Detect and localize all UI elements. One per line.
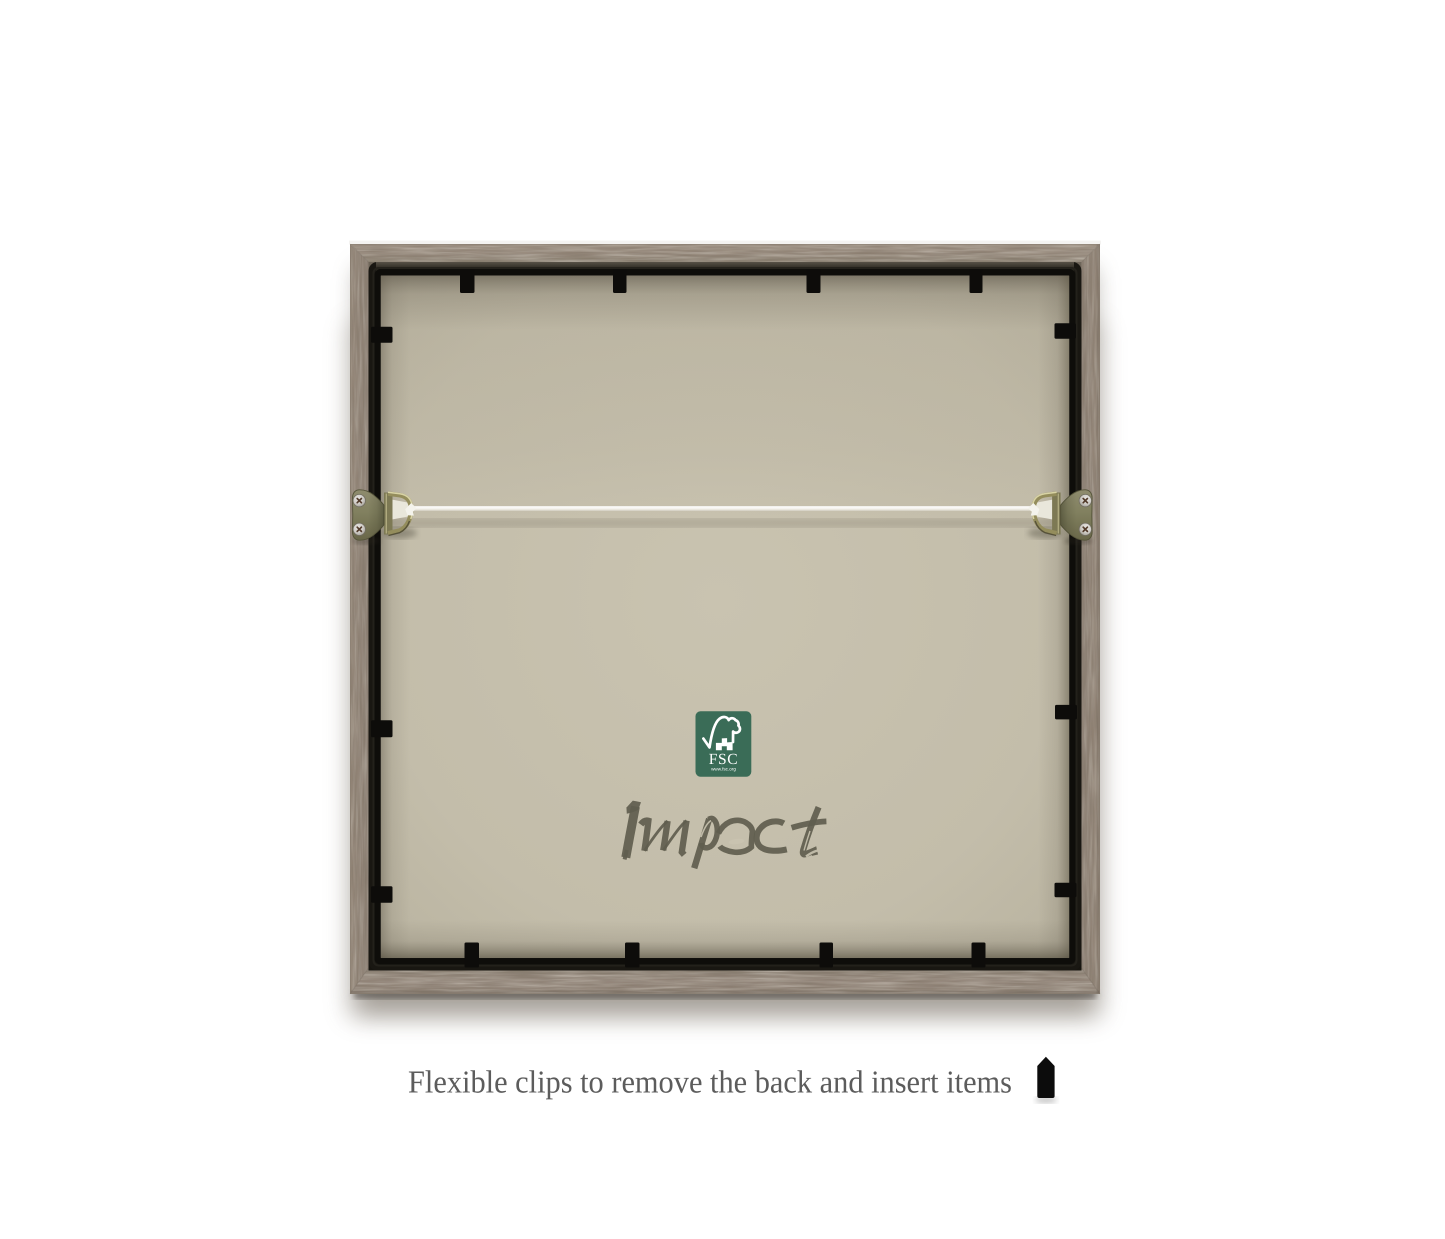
svg-text:www.fsc.org: www.fsc.org bbox=[711, 767, 736, 772]
svg-text:FSC: FSC bbox=[709, 751, 738, 768]
svg-text:Flexible clips to remove the b: Flexible clips to remove the back and in… bbox=[408, 1064, 1012, 1100]
